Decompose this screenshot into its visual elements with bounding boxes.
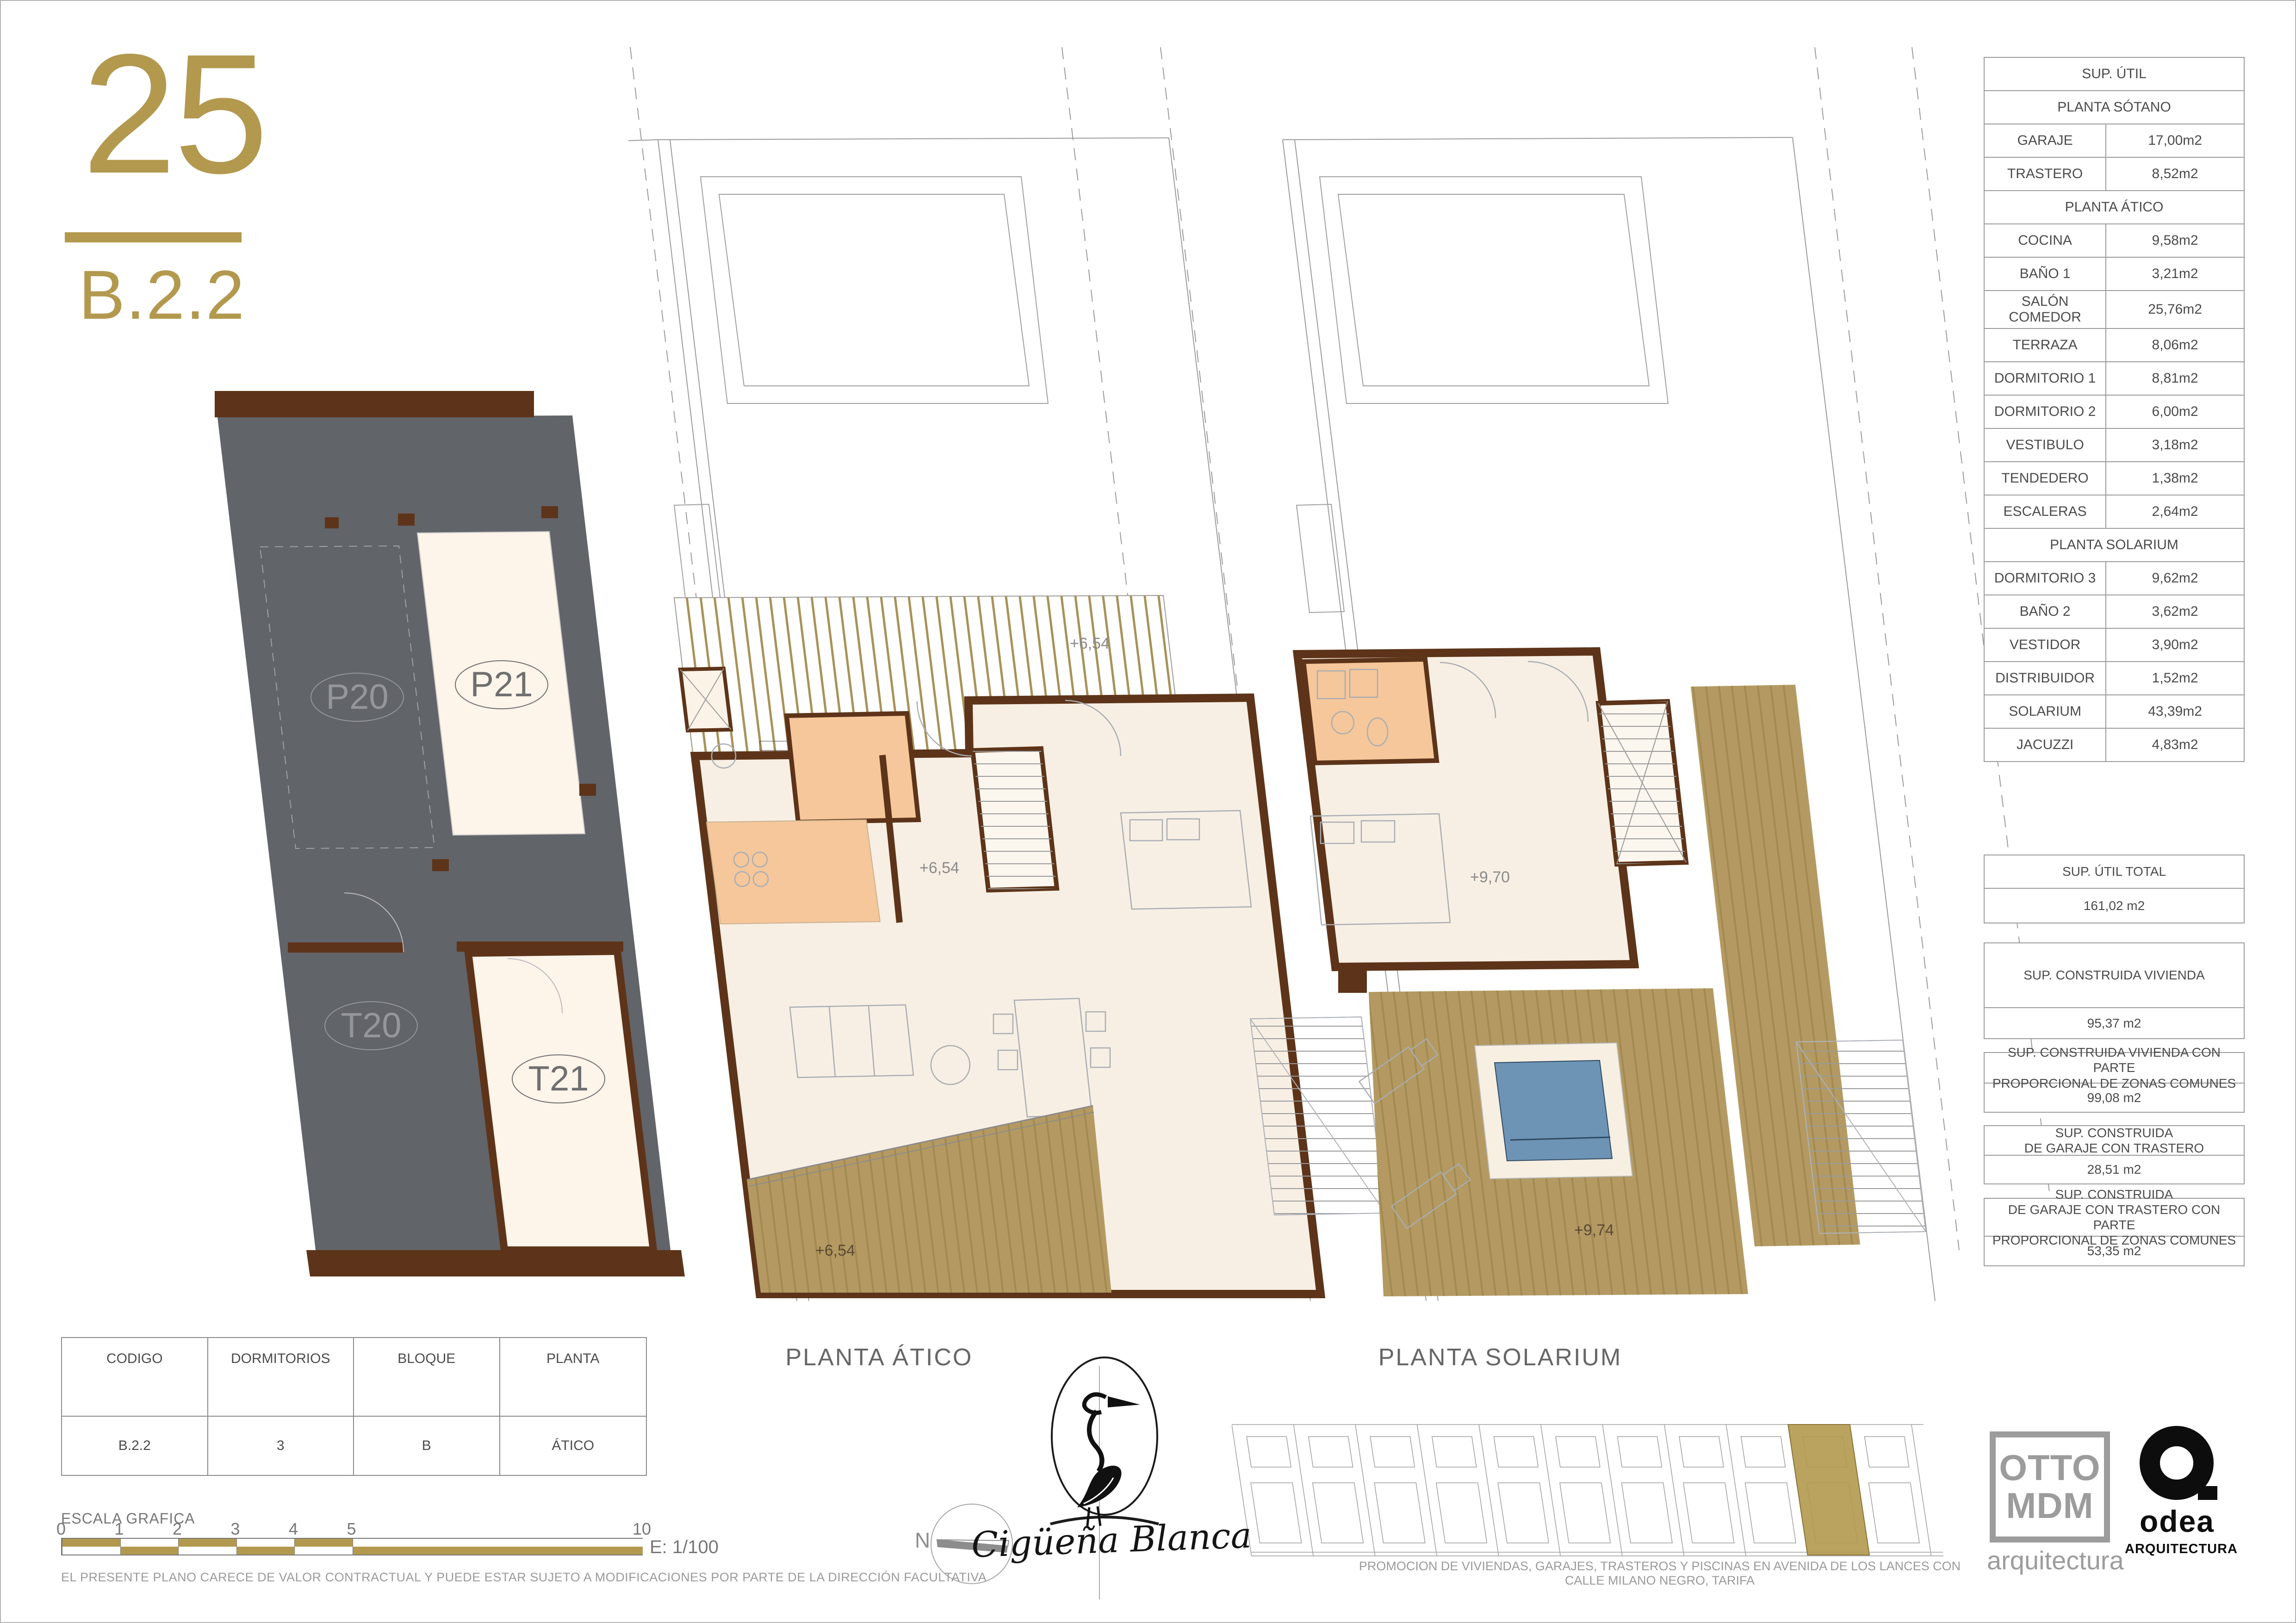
solarium-bath [1303,659,1437,763]
title-planta-solarium: PLANTA SOLARIUM [1378,1344,1622,1371]
solarium-level-deck: +9,74 [1574,1221,1614,1239]
solarium-jacuzzi [1495,1060,1612,1161]
info-table-header-row: CODIGO DORMITORIOS BLOQUE PLANTA [62,1338,646,1416]
solarium-neighbor-stair [1796,1040,1926,1233]
info-table: CODIGO DORMITORIOS BLOQUE PLANTA B.2.2 3… [61,1337,647,1476]
scale-tick-label: 2 [173,1519,182,1539]
sotano-wall-top [215,391,534,417]
stork-logo-icon [1050,1357,1159,1599]
area-item-value: 8,06m2 [2106,329,2244,361]
area-item-row: GARAJE17,00m2 [1985,124,2244,157]
atico-level-pergola: +6,54 [1070,635,1110,652]
area-item-row: TERRAZA8,06m2 [1985,328,2244,361]
area-item-row: TRASTERO8,52m2 [1985,157,2244,190]
area-item-value: 9,58m2 [2106,224,2244,257]
scale-bar-segment [353,1547,643,1555]
area-item-row: VESTIBULO3,18m2 [1985,428,2244,461]
otto-line1: OTTO [1999,1449,2100,1487]
area-item-value: 8,52m2 [2106,158,2244,190]
info-table-value-row: B.2.2 3 B ÁTICO [62,1416,646,1475]
unit-number: 25 [82,29,266,199]
area-section-row: PLANTA SOLARIUM [1985,528,2244,561]
area-item-label: TERRAZA [1985,329,2106,361]
site-highlighted-plot [1788,1425,1869,1555]
summary-box: SUP. ÚTIL TOTAL161,02 m2 [1984,855,2245,923]
area-item-value: 3,90m2 [2106,629,2244,661]
area-section-row: PLANTA SÓTANO [1985,90,2244,124]
scale-bar-segment [120,1539,179,1547]
area-item-row: BAÑO 13,21m2 [1985,257,2244,290]
summary-box: SUP. CONSTRUIDA VIVIENDA CON PARTEPROPOR… [1984,1052,2245,1113]
plan-atico: +6,54 +6,54 +6,54 [674,595,1385,1294]
info-header-dormitorios: DORMITORIOS [208,1338,354,1416]
area-item-value: 4,83m2 [2106,729,2244,761]
summary-box: SUP. CONSTRUIDA VIVIENDA95,37 m2 [1984,942,2245,1039]
site-plan-strip [1232,1424,1944,1558]
area-item-row: TENDEDERO1,38m2 [1985,461,2244,495]
area-item-row: SALÓN COMEDOR25,76m2 [1985,290,2244,328]
area-item-label: VESTIDOR [1985,629,2106,661]
area-section-label: PLANTA SOLARIUM [1985,529,2244,561]
pool-outline-solarium [1297,177,1668,613]
summary-box: SUP. CONSTRUIDADE GARAJE CON TRASTERO CO… [1984,1198,2245,1266]
area-item-row: SOLARIUM43,39m2 [1985,694,2244,728]
plan-sotano: P20 P21 T20 T21 [215,391,685,1276]
area-item-label: DORMITORIO 1 [1985,362,2106,395]
scale-bar-segment [294,1539,353,1547]
area-item-label: SOLARIUM [1985,695,2106,728]
summary-box-value: 28,51 m2 [1985,1156,2244,1183]
area-item-value: 3,62m2 [2106,595,2244,628]
scale-bar-segment [120,1547,179,1555]
atico-kitchen [707,820,880,924]
area-table: SUP. ÚTILPLANTA SÓTANOGARAJE17,00m2TRAST… [1984,57,2245,762]
area-item-row: ESCALERAS2,64m2 [1985,495,2244,528]
summary-box-label: SUP. CONSTRUIDA VIVIENDA [1985,943,2244,1008]
area-section-label: PLANTA ÁTICO [1985,191,2244,223]
area-item-row: JACUZZI4,83m2 [1985,728,2244,761]
title-planta-atico: PLANTA ÁTICO [786,1344,973,1371]
area-item-label: TRASTERO [1985,158,2106,190]
area-section-label: SUP. ÚTIL [1985,58,2244,90]
area-item-value: 6,00m2 [2106,396,2244,428]
label-p20: P20 [326,677,388,717]
area-item-value: 1,52m2 [2106,662,2244,694]
otto-sub: arquitectura [1987,1545,2116,1575]
scale-bar-segment [353,1539,643,1547]
scale-ratio: E: 1/100 [650,1537,719,1558]
otto-line2: MDM [2006,1487,2093,1525]
atico-neighbor-stair [1250,1017,1385,1215]
area-item-label: TENDEDERO [1985,462,2106,495]
scale-tick-label: 0 [56,1519,66,1539]
area-item-label: DISTRIBUIDOR [1985,662,2106,694]
scale-tick-label: 5 [347,1519,356,1539]
atico-level-deck: +6,54 [815,1242,855,1259]
plan-solarium: +9,70 +9,74 [1297,651,1926,1296]
sotano-t21-room [468,951,653,1250]
area-section-row: SUP. ÚTIL [1985,58,2244,90]
area-item-row: DISTRIBUIDOR1,52m2 [1985,661,2244,694]
area-item-row: DORMITORIO 26,00m2 [1985,395,2244,428]
area-item-row: DORMITORIO 39,62m2 [1985,561,2244,595]
label-t20: T20 [341,1006,402,1045]
area-item-row: VESTIDOR3,90m2 [1985,628,2244,661]
odea-logo-icon [2150,1436,2217,1500]
area-item-label: BAÑO 2 [1985,595,2106,628]
info-header-planta: PLANTA [500,1338,646,1416]
label-t21: T21 [528,1059,589,1098]
otto-mdm-logo: OTTO MDM [1990,1431,2110,1542]
summary-box-label: SUP. CONSTRUIDA VIVIENDA CON PARTEPROPOR… [1985,1053,2244,1084]
solarium-block [1338,971,1367,993]
scale-bar-segment [236,1547,295,1555]
summary-box: SUP. CONSTRUIDADE GARAJE CON TRASTERO28,… [1984,1125,2245,1184]
area-item-label: JACUZZI [1985,729,2106,761]
area-item-value: 17,00m2 [2106,124,2244,157]
disclaimer-text: EL PRESENTE PLANO CARECE DE VALOR CONTRA… [61,1570,987,1585]
area-section-label: PLANTA SÓTANO [1985,91,2244,124]
odea-sub: ARQUITECTURA [2125,1542,2229,1557]
area-item-label: GARAJE [1985,124,2106,157]
scale-bar-segment [178,1547,236,1555]
area-item-label: DORMITORIO 3 [1985,562,2106,595]
scale-bar-segment [62,1539,120,1547]
info-header-bloque: BLOQUE [354,1338,500,1416]
area-item-value: 9,62m2 [2106,562,2244,595]
pool-outline-atico [674,177,1048,613]
area-item-label: COCINA [1985,224,2106,257]
scale-tick-label: 3 [230,1519,240,1539]
area-item-label: ESCALERAS [1985,496,2106,528]
summary-box-label: SUP. CONSTRUIDADE GARAJE CON TRASTERO [1985,1126,2244,1156]
atico-bath [787,713,918,822]
summary-box-label: SUP. ÚTIL TOTAL [1985,855,2244,889]
atico-level-hall: +6,54 [919,859,959,877]
scale-bar [61,1538,643,1555]
area-item-label: BAÑO 1 [1985,258,2106,290]
area-item-row: DORMITORIO 18,81m2 [1985,361,2244,395]
area-section-row: PLANTA ÁTICO [1985,190,2244,223]
area-item-value: 3,21m2 [2106,258,2244,290]
plan-sheet: P20 P21 T20 T21 [0,0,2296,1623]
compass-n-label: N [915,1528,930,1553]
scale-tick-label: 10 [633,1519,651,1539]
sotano-wall-t-left [288,942,403,953]
sotano-wall-bottom [306,1250,685,1276]
solarium-level-room: +9,70 [1470,868,1510,886]
area-item-value: 2,64m2 [2106,496,2244,528]
area-item-row: BAÑO 23,62m2 [1985,595,2244,628]
summary-box-value: 161,02 m2 [1985,889,2244,923]
info-value-planta: ÁTICO [500,1416,646,1475]
area-item-value: 1,38m2 [2106,462,2244,495]
summary-box-label: SUP. CONSTRUIDADE GARAJE CON TRASTERO CO… [1985,1199,2244,1237]
odea-name: odea [2128,1504,2227,1539]
scale-bar-segment [62,1547,120,1555]
area-item-value: 3,18m2 [2106,429,2244,461]
scale-bar-segment [178,1539,236,1547]
scale-bar-segment [294,1547,353,1555]
scale-tick-label: 1 [114,1519,124,1539]
area-item-label: SALÓN COMEDOR [1985,291,2106,328]
info-value-bloque: B [354,1416,500,1475]
area-item-value: 8,81m2 [2106,362,2244,395]
info-value-dormitorios: 3 [208,1416,354,1475]
info-value-codigo: B.2.2 [62,1416,208,1475]
summary-box-value: 95,37 m2 [1985,1008,2244,1038]
area-item-value: 25,76m2 [2106,291,2244,328]
area-item-row: COCINA9,58m2 [1985,223,2244,257]
area-item-label: DORMITORIO 2 [1985,396,2106,428]
area-item-label: VESTIBULO [1985,429,2106,461]
info-header-codigo: CODIGO [62,1338,208,1416]
unit-code: B.2.2 [79,260,245,329]
label-p21: P21 [470,665,533,704]
area-item-value: 43,39m2 [2106,695,2244,728]
promo-text: PROMOCION DE VIVIENDAS, GARAJES, TRASTER… [1338,1559,1981,1588]
scale-tick-label: 4 [289,1519,298,1539]
unit-number-rule [65,232,242,242]
scale-bar-segment [236,1539,295,1547]
